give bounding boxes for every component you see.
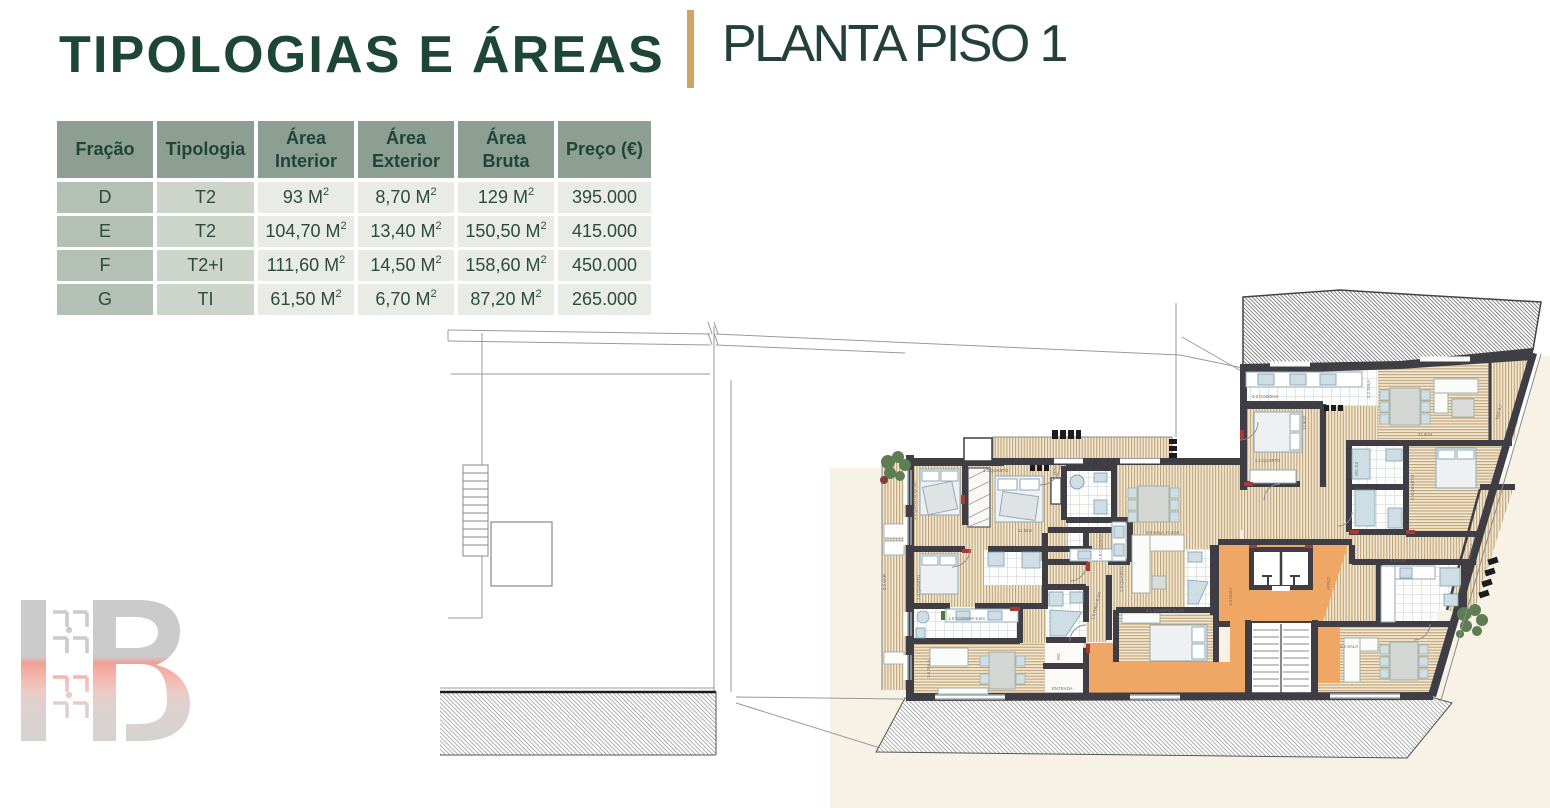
svg-text:1.2 QUARTO 12.3m: 1.2 QUARTO 12.3m [912,481,917,520]
svg-text:WC: WC [1056,653,1061,660]
svg-text:HALL: HALL [1052,464,1057,475]
svg-text:2.1 QUARTO: 2.1 QUARTO [1255,458,1281,463]
svg-text:ENTRADA: ENTRADA [1052,686,1073,691]
svg-text:21.6m2: 21.6m2 [1418,432,1433,437]
svg-text:2.2 SALA: 2.2 SALA [1366,380,1371,398]
svg-text:1.8 COZINHA: 1.8 COZINHA [1098,533,1103,560]
svg-text:11.9m2: 11.9m2 [1018,528,1033,533]
svg-text:1.9 SALA 27.4m2: 1.9 SALA 27.4m2 [1146,530,1180,535]
svg-text:1.4 QUARTO: 1.4 QUARTO [916,574,921,600]
svg-text:1.6 SALA: 1.6 SALA [926,660,931,678]
svg-text:12.8m2: 12.8m2 [1302,415,1307,430]
svg-text:3.3 COZ: 3.3 COZ [1390,558,1407,563]
svg-text:3.1 QUARTO 11.2m: 3.1 QUARTO 11.2m [1146,608,1185,613]
svg-text:1.5 COZINHA 9.6m: 1.5 COZINHA 9.6m [948,616,985,621]
svg-text:1.3 QUARTO: 1.3 QUARTO [983,468,1009,473]
svg-text:WC 4.2: WC 4.2 [1354,461,1359,476]
svg-text:ATRIO: ATRIO [1326,577,1331,590]
svg-text:0.9 VAR: 0.9 VAR [882,574,887,590]
svg-text:2.3 COZINHA: 2.3 COZINHA [1252,394,1279,399]
svg-text:3.2 SALA: 3.2 SALA [1340,644,1358,649]
svg-text:2.5 QUARTO: 2.5 QUARTO [1119,566,1124,592]
svg-text:2.4 QUARTO: 2.4 QUARTO [1410,474,1415,500]
svg-text:1.0 ELEV: 1.0 ELEV [1228,588,1233,606]
